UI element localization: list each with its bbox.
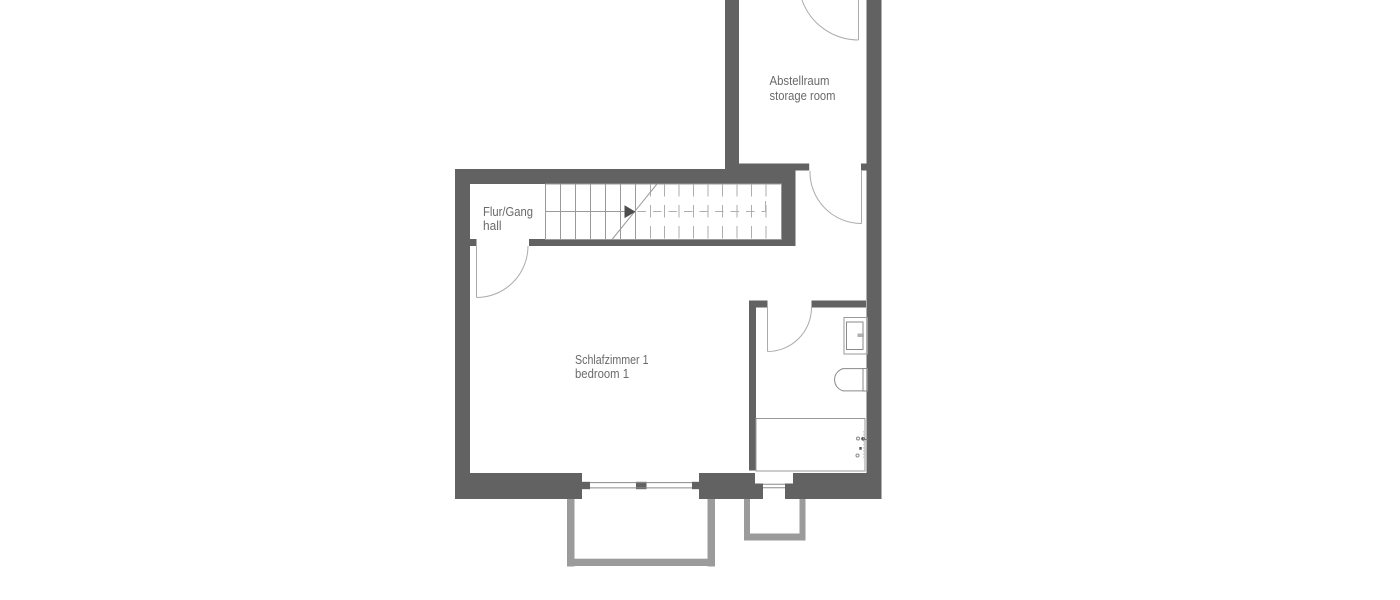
svg-text:Flur/Gang: Flur/Gang: [483, 204, 533, 219]
svg-text:Schlafzimmer 1: Schlafzimmer 1: [575, 352, 649, 367]
svg-text:hall: hall: [483, 218, 502, 233]
svg-text:bedroom 1: bedroom 1: [575, 366, 629, 381]
svg-text:storage room: storage room: [770, 88, 836, 103]
svg-text:Abstellraum: Abstellraum: [770, 73, 830, 88]
